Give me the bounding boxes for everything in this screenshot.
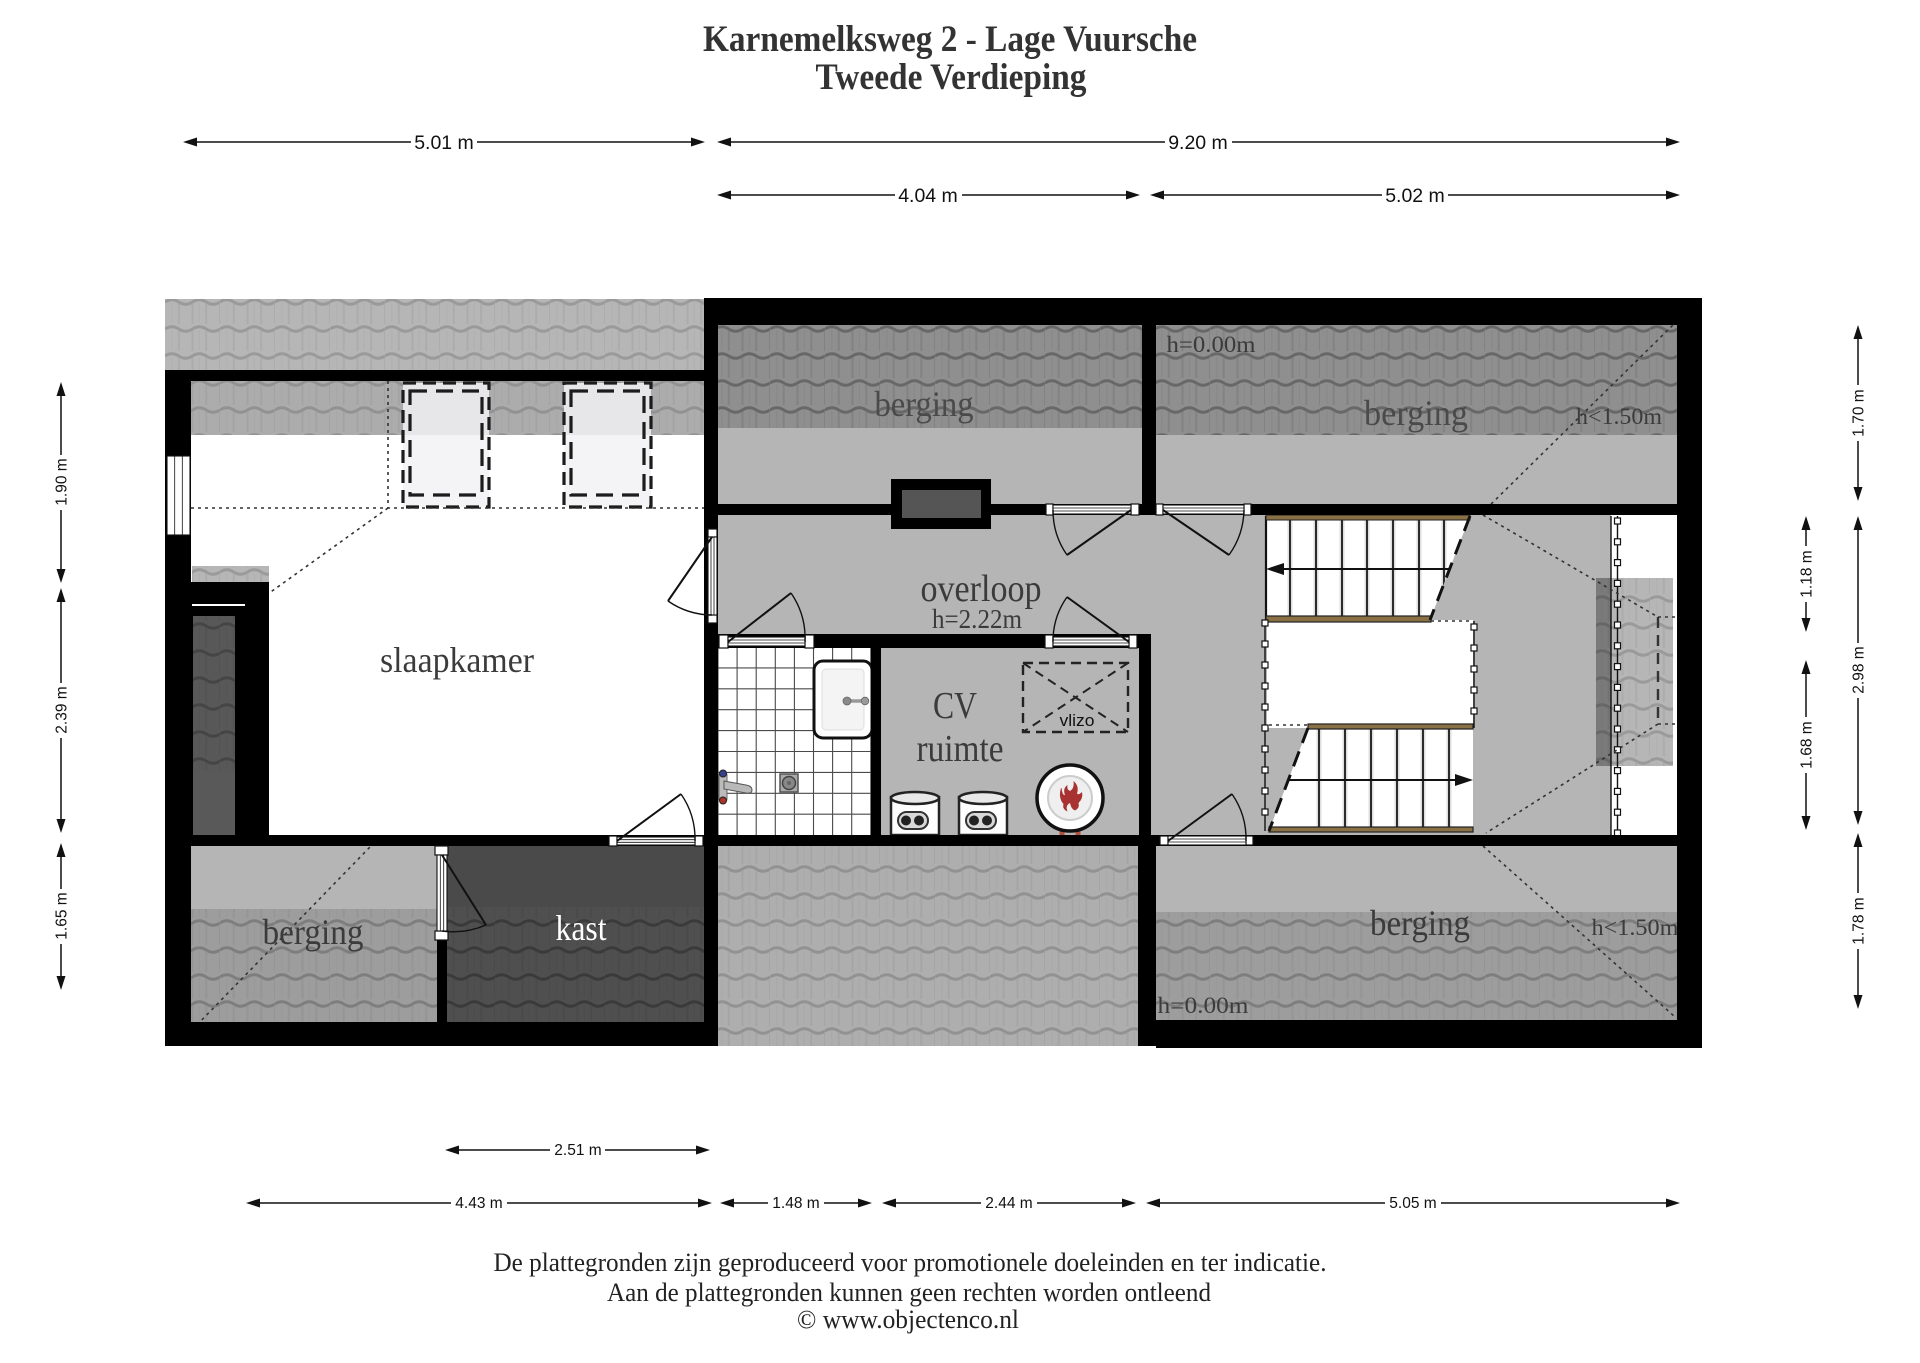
svg-text:9.20 m: 9.20 m: [1168, 132, 1228, 154]
svg-text:2.44 m: 2.44 m: [985, 1195, 1032, 1212]
svg-text:Karnemelksweg 2 - Lage Vuursch: Karnemelksweg 2 - Lage Vuursche: [703, 19, 1197, 60]
svg-text:De plattegronden zijn geproduc: De plattegronden zijn geproduceerd voor …: [494, 1248, 1327, 1277]
svg-text:5.01 m: 5.01 m: [414, 132, 474, 154]
svg-text:2.51 m: 2.51 m: [554, 1142, 601, 1159]
svg-text:2.98 m: 2.98 m: [1850, 646, 1867, 693]
svg-text:kast: kast: [556, 908, 607, 948]
svg-text:CV: CV: [933, 685, 977, 727]
svg-text:h=0.00m: h=0.00m: [1158, 993, 1249, 1018]
svg-text:4.04 m: 4.04 m: [898, 185, 958, 207]
svg-text:© www.objectenco.nl: © www.objectenco.nl: [797, 1305, 1019, 1334]
svg-text:1.70 m: 1.70 m: [1850, 389, 1867, 436]
svg-text:h=0.00m: h=0.00m: [1167, 332, 1256, 357]
svg-text:1.48 m: 1.48 m: [772, 1195, 819, 1212]
svg-text:vlizo: vlizo: [1060, 711, 1095, 730]
svg-text:Tweede Verdieping: Tweede Verdieping: [816, 57, 1087, 98]
svg-text:4.43 m: 4.43 m: [455, 1195, 502, 1212]
svg-text:Aan de plattegronden kunnen ge: Aan de plattegronden kunnen geen rechten…: [607, 1278, 1211, 1307]
svg-text:1.78 m: 1.78 m: [1850, 897, 1867, 944]
svg-text:1.68 m: 1.68 m: [1798, 721, 1815, 768]
svg-text:h=2.22m: h=2.22m: [932, 604, 1022, 634]
svg-text:h<1.50m: h<1.50m: [1576, 404, 1662, 429]
svg-text:5.05 m: 5.05 m: [1389, 1195, 1436, 1212]
svg-text:2.39 m: 2.39 m: [53, 686, 70, 733]
svg-text:berging: berging: [263, 912, 364, 952]
svg-text:h<1.50m: h<1.50m: [1592, 915, 1679, 940]
svg-text:5.02 m: 5.02 m: [1385, 185, 1445, 207]
svg-text:1.18 m: 1.18 m: [1798, 550, 1815, 597]
svg-text:ruimte: ruimte: [917, 728, 1004, 770]
svg-text:berging: berging: [875, 384, 974, 424]
svg-text:berging: berging: [1370, 903, 1470, 943]
svg-text:1.65 m: 1.65 m: [53, 892, 70, 939]
svg-text:1.90 m: 1.90 m: [53, 458, 70, 505]
svg-text:berging: berging: [1364, 393, 1468, 433]
svg-text:slaapkamer: slaapkamer: [380, 640, 534, 680]
